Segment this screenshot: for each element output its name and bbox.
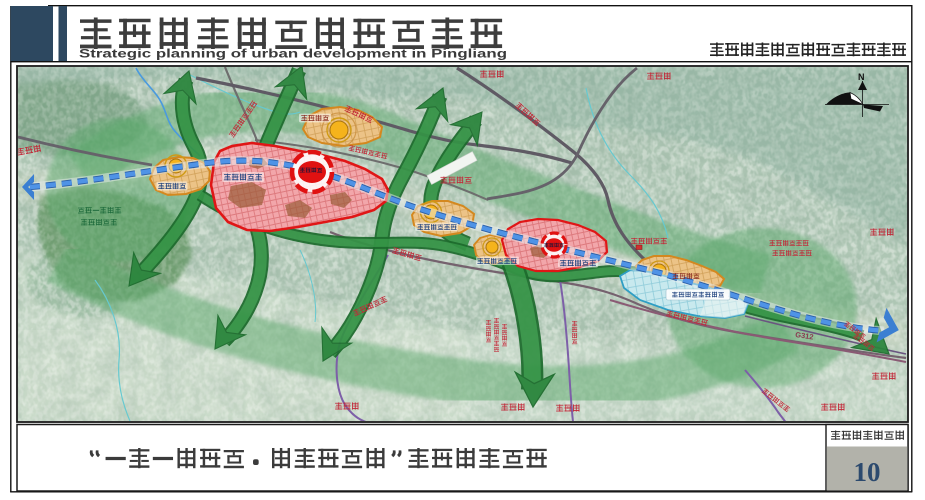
svg-text:N: N bbox=[858, 72, 865, 82]
svg-text:10: 10 bbox=[854, 457, 881, 487]
svg-text:Strategic planning of urban de: Strategic planning of urban development … bbox=[79, 49, 507, 61]
